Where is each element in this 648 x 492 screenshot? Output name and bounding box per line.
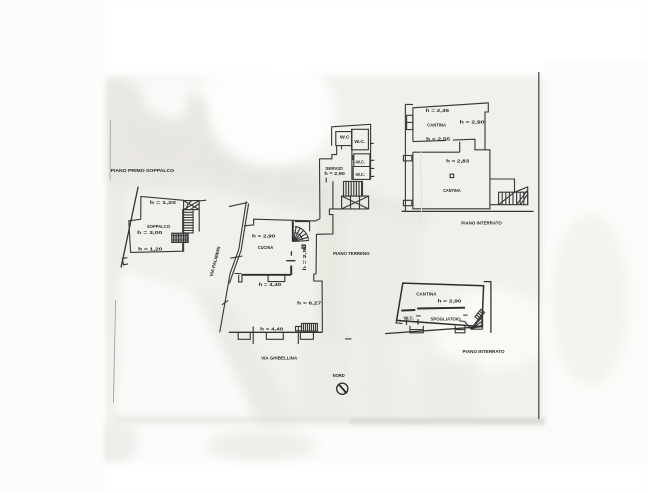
svg-text:CANTINA: CANTINA (427, 123, 447, 128)
svg-text:h = 2,55: h = 2,55 (426, 136, 451, 141)
svg-text:h = 1,20: h = 1,20 (150, 200, 177, 205)
svg-text:CANTINA: CANTINA (416, 291, 437, 296)
svg-text:W.C.: W.C. (354, 139, 365, 144)
svg-text:PIANO INTERRATO: PIANO INTERRATO (461, 220, 502, 225)
svg-text:CANTINA: CANTINA (443, 188, 461, 193)
svg-text:h = 6,27: h = 6,27 (297, 301, 322, 306)
svg-text:h = 1,20: h = 1,20 (138, 246, 163, 251)
svg-text:h = 4,40: h = 4,40 (259, 282, 282, 287)
svg-text:h = 2,90: h = 2,90 (252, 234, 276, 239)
svg-text:PIANO PRIMO SOPPALCO: PIANO PRIMO SOPPALCO (111, 168, 175, 174)
svg-text:PIANO INTERRATO: PIANO INTERRATO (463, 349, 506, 354)
svg-text:-W.C.: -W.C. (355, 159, 366, 164)
svg-text:h = 2,90: h = 2,90 (460, 119, 486, 124)
svg-text:W.C.: W.C. (404, 315, 415, 320)
svg-text:-W.C.: -W.C. (355, 172, 366, 177)
svg-text:CUCINA: CUCINA (258, 245, 274, 250)
svg-text:SPOGLIATOIO: SPOGLIATOIO (430, 316, 461, 321)
svg-text:PIANO TERRENO: PIANO TERRENO (333, 251, 370, 257)
svg-text:W.C: W.C (340, 135, 350, 140)
svg-text:h = 2,90: h = 2,90 (302, 244, 307, 271)
svg-text:VIA GHIBELLINA: VIA GHIBELLINA (261, 355, 298, 360)
svg-text:h = 3,00: h = 3,00 (137, 230, 163, 235)
svg-text:h = 4,40: h = 4,40 (260, 326, 284, 331)
svg-text:h = 2,83: h = 2,83 (446, 159, 470, 164)
svg-text:h = 2,35: h = 2,35 (426, 108, 450, 113)
svg-text:NORD: NORD (333, 373, 345, 378)
svg-text:h = 2,90: h = 2,90 (324, 171, 345, 176)
svg-text:h = 2,90: h = 2,90 (438, 299, 463, 304)
svg-text:SOPPALCO: SOPPALCO (147, 224, 171, 229)
